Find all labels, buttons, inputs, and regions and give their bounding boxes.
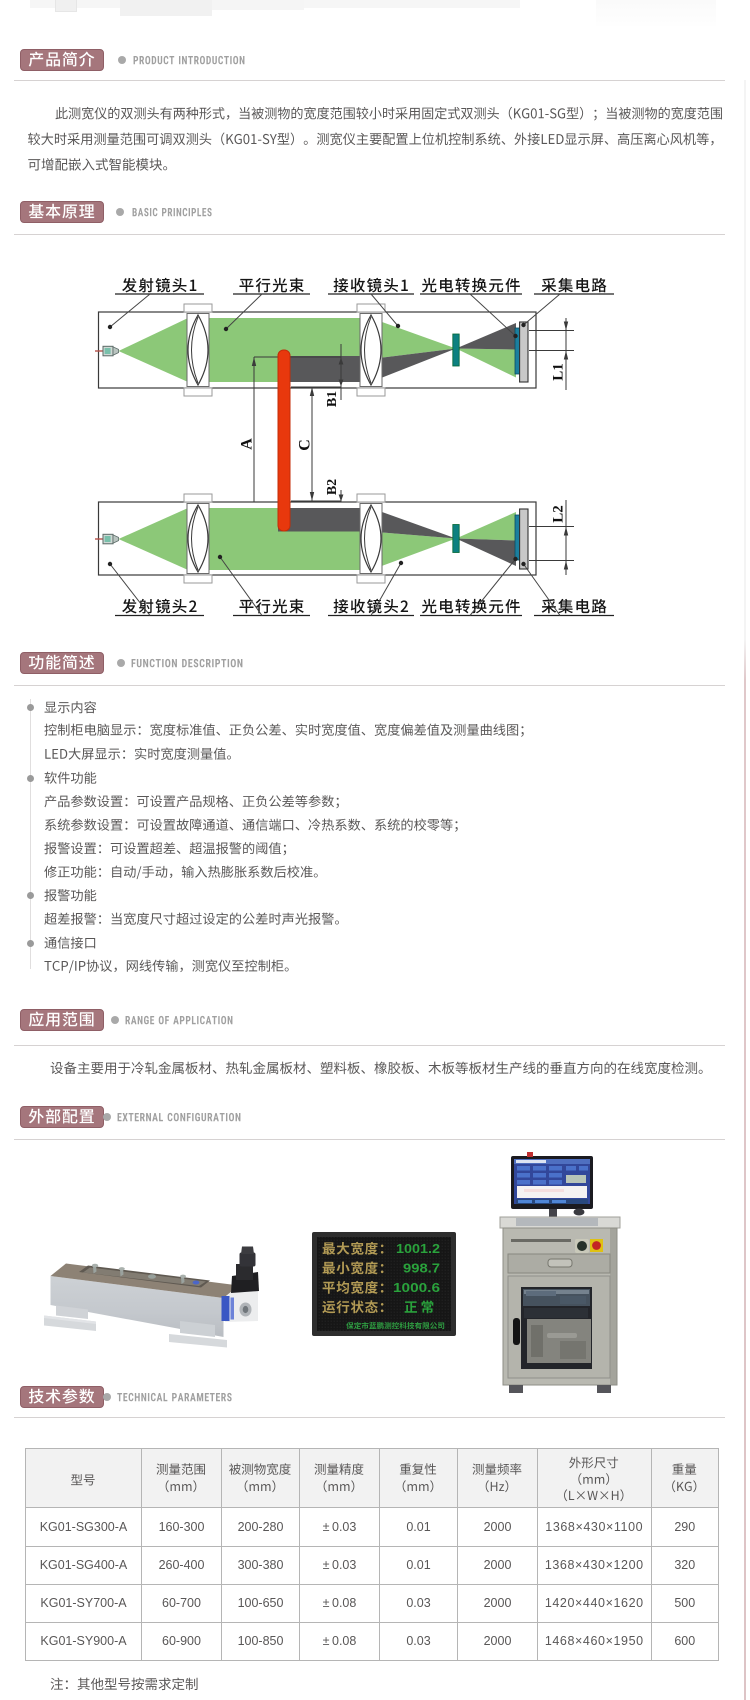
svg-text:1000.6: 1000.6 bbox=[393, 1280, 440, 1295]
svg-text:L1: L1 bbox=[550, 363, 566, 381]
svg-text:1001.2: 1001.2 bbox=[396, 1241, 440, 1256]
svg-text:C: C bbox=[297, 439, 314, 451]
svg-text:L2: L2 bbox=[550, 505, 566, 523]
svg-text:B2: B2 bbox=[325, 479, 340, 495]
svg-text:A: A bbox=[239, 438, 256, 450]
svg-text:998.7: 998.7 bbox=[403, 1261, 440, 1276]
svg-text:B1: B1 bbox=[325, 391, 340, 407]
